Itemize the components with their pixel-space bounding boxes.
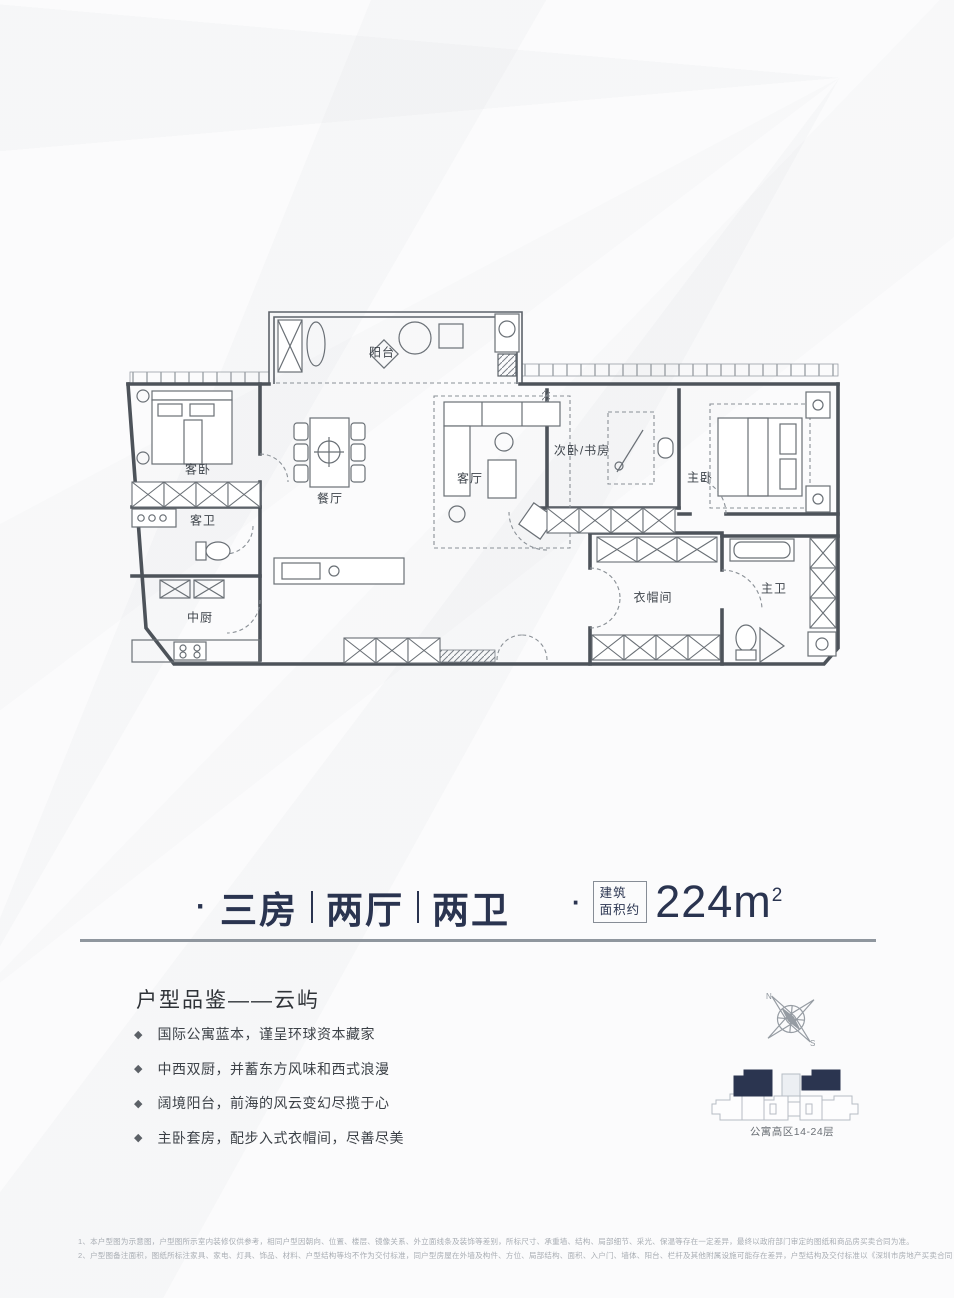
list-item: ◆ 中西双厨，并蓄东方风味和西式浪漫 <box>134 1059 404 1079</box>
area-block: · 建筑 面积约 224m2 <box>572 876 783 928</box>
balcony-outline <box>269 312 522 384</box>
area-number: 224m <box>655 876 772 927</box>
title-part-rooms: 三房 <box>220 880 298 934</box>
room-label-living-room: 客厅 <box>457 470 483 487</box>
area-label-box: 建筑 面积约 <box>593 881 648 923</box>
corridor-cabinet <box>344 638 440 663</box>
title-bullet: · <box>196 890 206 924</box>
area-label-line1: 建筑 <box>600 885 641 902</box>
title-separator <box>417 891 419 923</box>
room-label-cloakroom: 衣帽间 <box>633 589 672 606</box>
feature-text: 阔境阳台，前海的风云变幻尽揽于心 <box>157 1093 389 1113</box>
disclaimer-line-2: 2、户型图备注面积，图纸所标注家具、家电、灯具、饰品、材料、户型结构等均不作为交… <box>78 1250 884 1261</box>
title-part-halls: 两厅 <box>326 880 404 934</box>
disclaimer-line-1: 1、本户型图为示意图，户型图所示室内装修仅供参考，相同户型因朝向、位置、楼层、镜… <box>78 1236 884 1247</box>
diamond-bullet-icon: ◆ <box>134 1028 142 1041</box>
compass-north-label: N <box>766 992 772 1001</box>
area-bullet: · <box>572 887 581 918</box>
section-divider <box>80 939 876 942</box>
building-caption: 公寓高区14-24层 <box>706 1124 878 1139</box>
compass-rose-icon: N S <box>758 986 824 1052</box>
room-label-master-bathroom: 主卫 <box>761 580 787 597</box>
floor-plan: 阳台 客卧 客卫 餐厅 客厅 次卧/书房 主卧 衣帽间 主卫 中厨 <box>112 296 848 688</box>
room-label-master-bedroom: 主卧 <box>687 469 713 486</box>
building-key-plan <box>706 1060 878 1124</box>
guest-bed <box>137 390 232 464</box>
feature-list: ◆ 国际公寓蓝本，谨呈环球资本藏家 ◆ 中西双厨，并蓄东方风味和西式浪漫 ◆ 阔… <box>134 1024 404 1162</box>
section-heading: 户型品鉴——云屿 <box>136 984 320 1014</box>
diamond-bullet-icon: ◆ <box>134 1062 142 1075</box>
cloakroom-closets <box>547 508 720 660</box>
kitchen-island <box>274 558 404 584</box>
title-separator <box>311 891 313 923</box>
compass-south-label: S <box>810 1039 815 1048</box>
brochure-page: 阳台 客卧 客卫 餐厅 客厅 次卧/书房 主卧 衣帽间 主卫 中厨 · 三房 两… <box>0 0 954 1298</box>
master-bed <box>710 392 830 512</box>
feature-text: 国际公寓蓝本，谨呈环球资本藏家 <box>157 1024 375 1044</box>
list-item: ◆ 国际公寓蓝本，谨呈环球资本藏家 <box>134 1024 404 1044</box>
diamond-bullet-icon: ◆ <box>134 1131 142 1144</box>
room-label-guest-bathroom: 客卫 <box>190 512 216 529</box>
study-furniture <box>608 412 673 484</box>
feature-text: 主卧套房，配步入式衣帽间，尽善尽美 <box>157 1128 404 1148</box>
list-item: ◆ 主卧套房，配步入式衣帽间，尽善尽美 <box>134 1128 404 1148</box>
floor-plan-drawing <box>112 296 848 688</box>
diamond-bullet-icon: ◆ <box>134 1097 142 1110</box>
window-mullion-strips <box>130 364 838 384</box>
room-label-dining-room: 餐厅 <box>317 490 343 507</box>
room-label-guest-bedroom: 客卧 <box>185 461 211 478</box>
room-label-chinese-kitchen: 中厨 <box>187 609 213 626</box>
feature-text: 中西双厨，并蓄东方风味和西式浪漫 <box>157 1059 389 1079</box>
area-label-line2: 面积约 <box>600 902 641 919</box>
dining-set <box>294 418 365 487</box>
area-superscript: 2 <box>772 885 784 906</box>
room-label-balcony: 阳台 <box>369 344 395 361</box>
title-part-baths: 两卫 <box>432 880 510 934</box>
guest-wardrobe <box>132 482 260 507</box>
master-bathroom-fixtures <box>730 538 836 662</box>
layout-title: · 三房 两厅 两卫 <box>196 880 510 934</box>
room-label-second-bedroom: 次卧/书房 <box>554 442 610 459</box>
list-item: ◆ 阔境阳台，前海的风云变幻尽揽于心 <box>134 1093 404 1113</box>
area-value: 224m2 <box>655 876 783 928</box>
